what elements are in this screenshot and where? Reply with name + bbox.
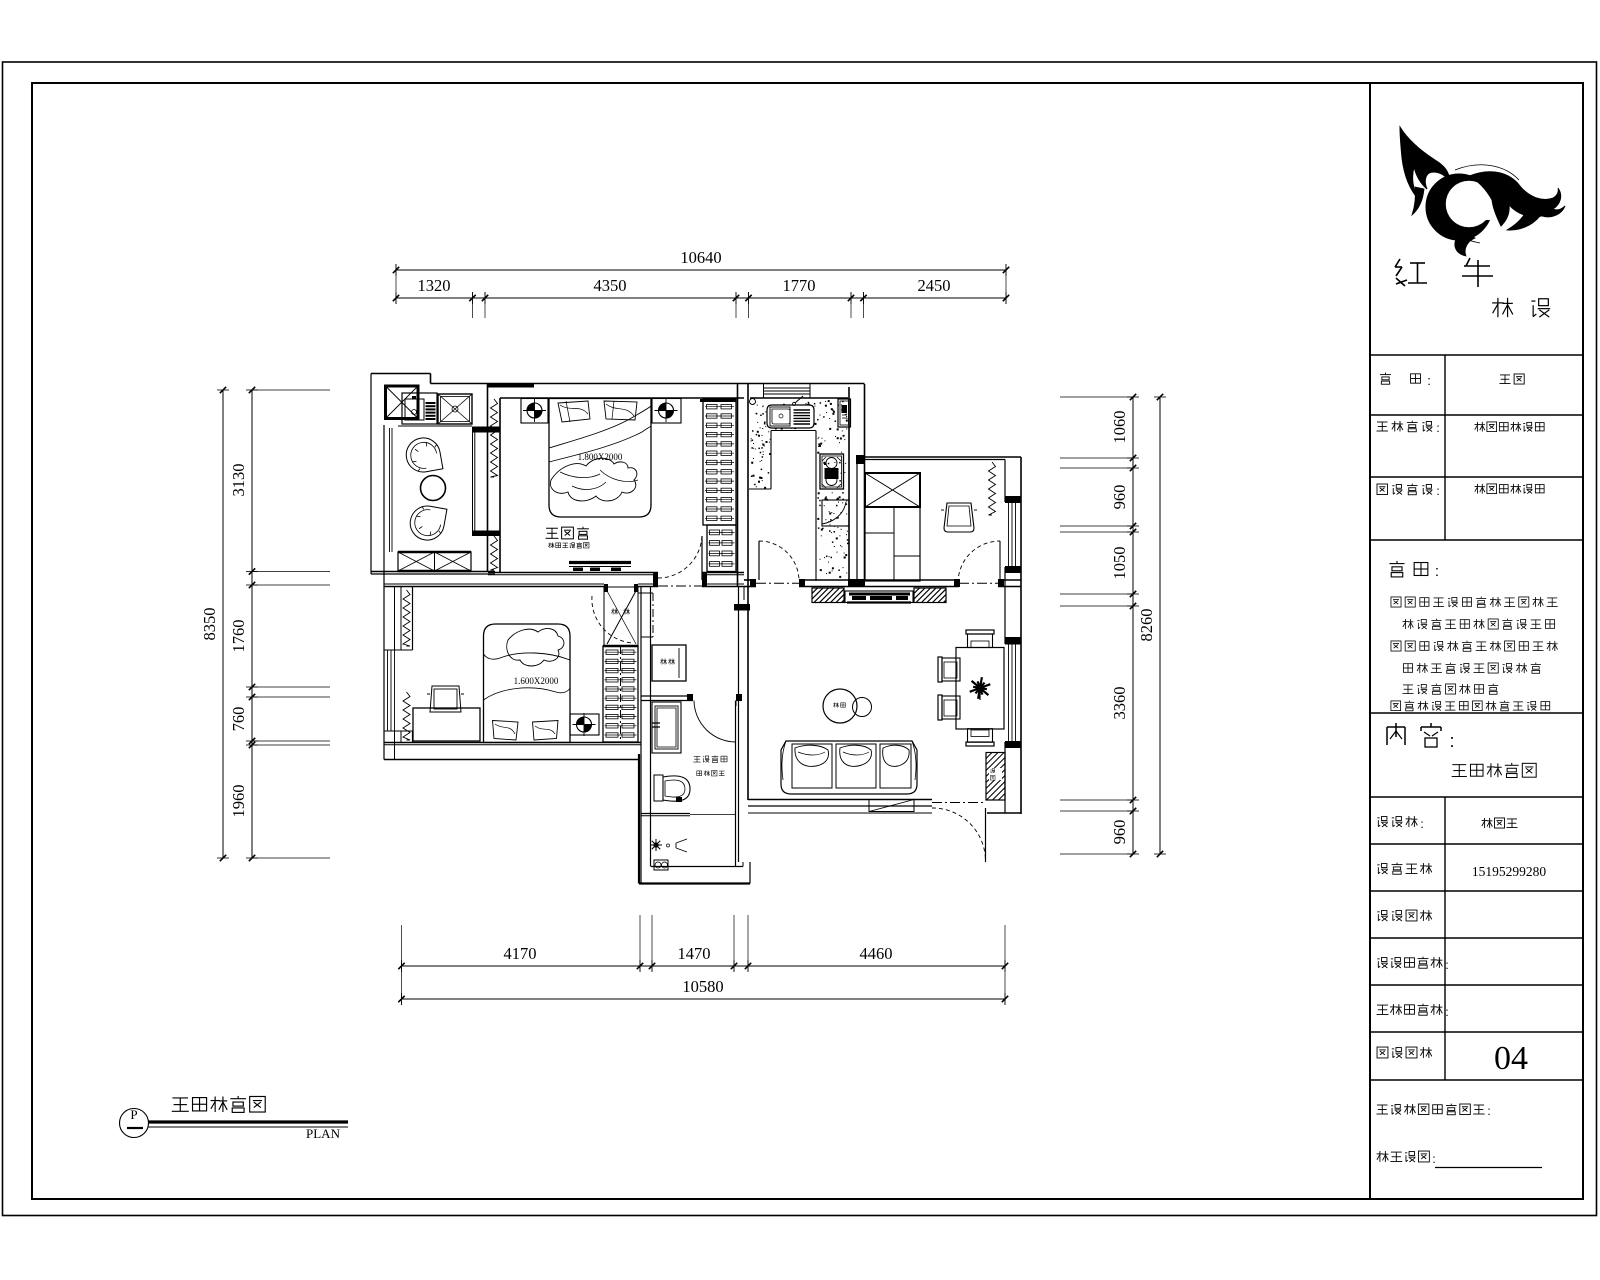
svg-text:1770: 1770 — [783, 276, 816, 295]
svg-text:3130: 3130 — [229, 464, 248, 497]
svg-text:760: 760 — [229, 707, 248, 732]
svg-text::: : — [1435, 563, 1439, 580]
svg-text::: : — [1436, 421, 1439, 435]
svg-text:1470: 1470 — [678, 944, 711, 963]
svg-text:8350: 8350 — [200, 608, 219, 641]
svg-text:PLAN: PLAN — [306, 1126, 341, 1141]
svg-text:4460: 4460 — [860, 944, 893, 963]
svg-text:15195299280: 15195299280 — [1472, 864, 1547, 879]
svg-text:04: 04 — [1494, 1040, 1528, 1077]
svg-text:4350: 4350 — [594, 276, 627, 295]
svg-text:1320: 1320 — [418, 276, 451, 295]
svg-text:1060: 1060 — [1110, 411, 1129, 444]
svg-text:960: 960 — [1110, 485, 1129, 510]
svg-text::: : — [1487, 1104, 1490, 1118]
svg-text::: : — [1427, 373, 1431, 388]
svg-text::: : — [1445, 1005, 1448, 1019]
svg-text:1050: 1050 — [1110, 547, 1129, 580]
svg-text:1.800X2000: 1.800X2000 — [578, 452, 623, 462]
svg-text:960: 960 — [1110, 820, 1129, 845]
svg-text:8260: 8260 — [1137, 609, 1156, 642]
svg-text::: : — [1445, 958, 1448, 972]
svg-text:1760: 1760 — [229, 620, 248, 653]
svg-text::: : — [1436, 484, 1439, 498]
svg-text::: : — [1449, 731, 1454, 751]
svg-text::: : — [1432, 1152, 1435, 1166]
svg-text:10580: 10580 — [682, 977, 723, 996]
svg-text:P: P — [130, 1107, 137, 1122]
svg-text:10640: 10640 — [680, 248, 721, 267]
svg-text:1.600X2000: 1.600X2000 — [514, 676, 559, 686]
svg-text:4170: 4170 — [504, 944, 537, 963]
svg-text:1960: 1960 — [229, 785, 248, 818]
svg-text::: : — [1420, 817, 1423, 831]
svg-text:3360: 3360 — [1110, 687, 1129, 720]
svg-text:2450: 2450 — [918, 276, 951, 295]
